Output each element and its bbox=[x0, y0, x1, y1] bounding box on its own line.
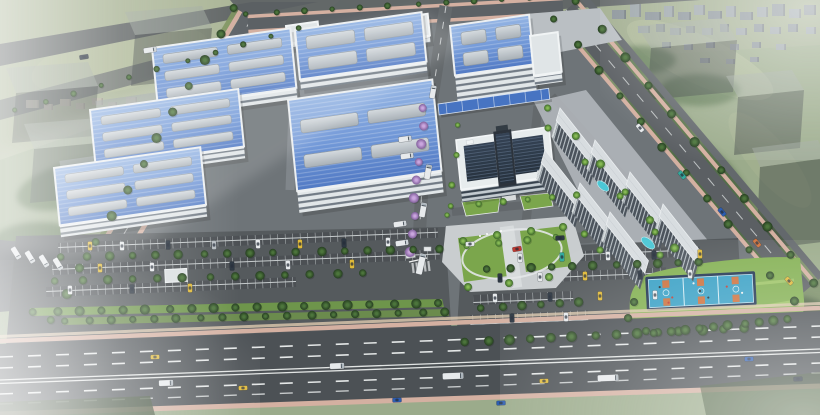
aerial-rendering bbox=[0, 0, 820, 415]
scene-svg bbox=[0, 0, 820, 415]
fog-top-right bbox=[600, 0, 820, 160]
fog-bottom-right bbox=[500, 240, 820, 415]
fog-overlays bbox=[0, 0, 820, 415]
fog-bottom-left bbox=[0, 260, 260, 415]
